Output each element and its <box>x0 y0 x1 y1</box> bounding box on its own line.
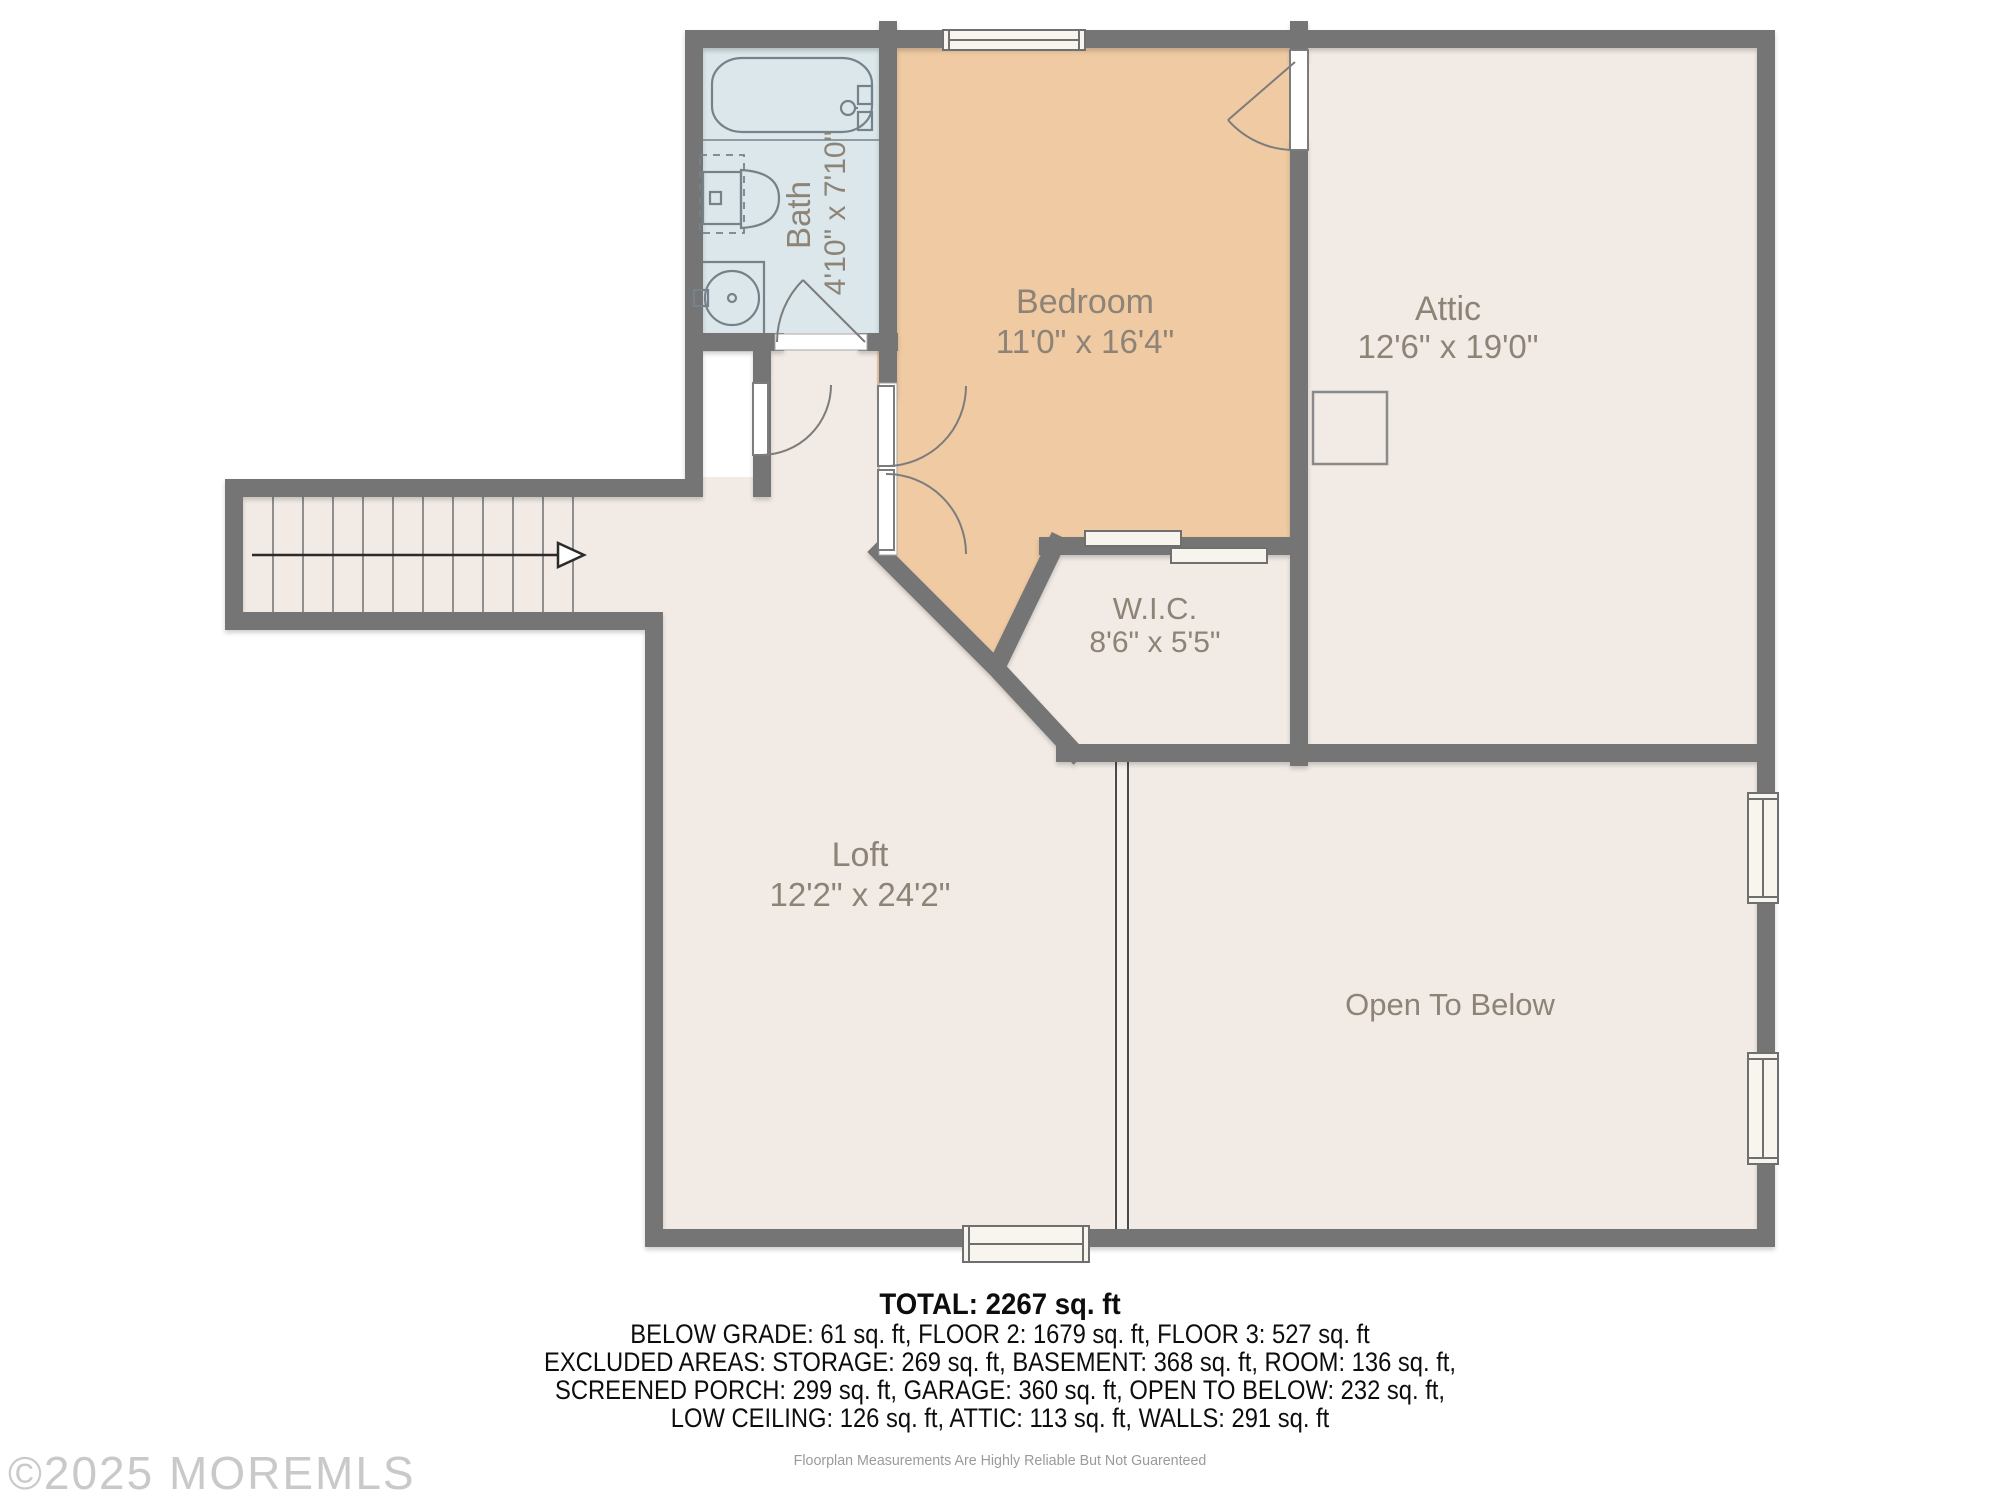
bath-label: Bath <box>780 181 817 249</box>
floorplan-drawing: Bath 4'10" x 7'10" Bedroom 11'0" x 16'4"… <box>0 0 2000 1500</box>
window-bottom <box>963 1226 1089 1262</box>
floorplan-page: Bath 4'10" x 7'10" Bedroom 11'0" x 16'4"… <box>0 0 2000 1500</box>
mls-watermark: ©2025 MOREMLS <box>8 1446 416 1500</box>
open-to-below-label: Open To Below <box>1345 987 1555 1022</box>
summary-line-excluded-3: LOW CEILING: 126 sq. ft, ATTIC: 113 sq. … <box>120 1403 1880 1434</box>
summary-line-excluded-1: EXCLUDED AREAS: STORAGE: 269 sq. ft, BAS… <box>120 1347 1880 1378</box>
total-area-text: TOTAL: 2267 sq. ft <box>80 1288 1920 1322</box>
railing <box>1114 762 1130 1229</box>
window-top <box>943 30 1085 50</box>
summary-line-floors: BELOW GRADE: 61 sq. ft, FLOOR 2: 1679 sq… <box>120 1319 1880 1350</box>
loft-label: Loft <box>832 836 889 874</box>
window-right-upper <box>1748 793 1778 903</box>
wic-dims: 8'6" x 5'5" <box>1089 626 1220 659</box>
loft-dims: 12'2" x 24'2" <box>770 876 951 913</box>
summary-line-excluded-2: SCREENED PORCH: 299 sq. ft, GARAGE: 360 … <box>120 1375 1880 1406</box>
floor-areas <box>243 48 1757 1229</box>
attic-dims: 12'6" x 19'0" <box>1358 328 1539 365</box>
bedroom-label: Bedroom <box>1016 283 1154 321</box>
attic-access-hatch <box>1313 392 1387 464</box>
wic-label: W.I.C. <box>1113 591 1197 626</box>
bath-dims: 4'10" x 7'10" <box>819 131 852 296</box>
window-right-lower <box>1748 1053 1778 1164</box>
exterior-void <box>703 352 753 477</box>
bedroom-dims: 11'0" x 16'4" <box>996 323 1175 360</box>
attic-label: Attic <box>1415 290 1481 328</box>
